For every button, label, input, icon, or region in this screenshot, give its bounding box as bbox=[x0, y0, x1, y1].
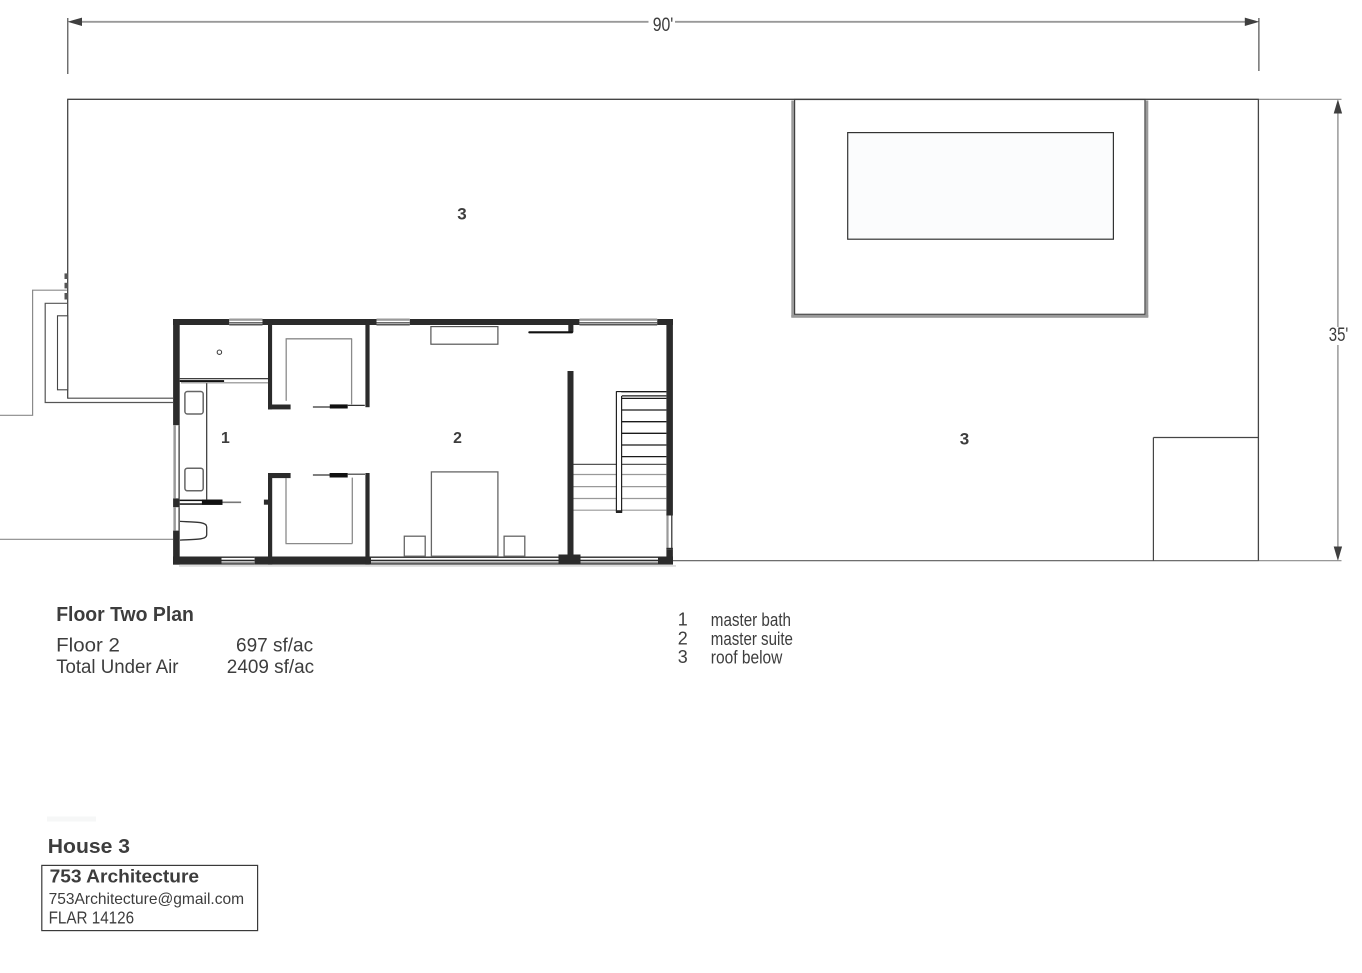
svg-text:753Architecture@gmail.com: 753Architecture@gmail.com bbox=[49, 891, 245, 908]
svg-text:master bath: master bath bbox=[711, 609, 791, 630]
svg-text:1: 1 bbox=[678, 609, 688, 630]
svg-text:Floor 2: Floor 2 bbox=[56, 636, 120, 657]
svg-text:1: 1 bbox=[221, 430, 230, 447]
svg-text:Total Under Air: Total Under Air bbox=[56, 657, 179, 678]
svg-text:90': 90' bbox=[653, 14, 674, 36]
svg-text:753 Architecture: 753 Architecture bbox=[50, 866, 200, 887]
svg-text:3: 3 bbox=[960, 429, 969, 448]
svg-text:FLAR 14126: FLAR 14126 bbox=[49, 908, 135, 928]
svg-text:3: 3 bbox=[457, 204, 466, 223]
svg-text:3: 3 bbox=[678, 646, 688, 667]
svg-text:35': 35' bbox=[1329, 324, 1349, 346]
svg-text:roof below: roof below bbox=[711, 647, 783, 668]
svg-text:2: 2 bbox=[453, 430, 462, 447]
svg-text:697 sf/ac: 697 sf/ac bbox=[236, 636, 313, 657]
svg-text:Floor Two Plan: Floor Two Plan bbox=[56, 604, 194, 626]
svg-text:House 3: House 3 bbox=[48, 836, 130, 858]
svg-text:2409 sf/ac: 2409 sf/ac bbox=[227, 657, 314, 678]
